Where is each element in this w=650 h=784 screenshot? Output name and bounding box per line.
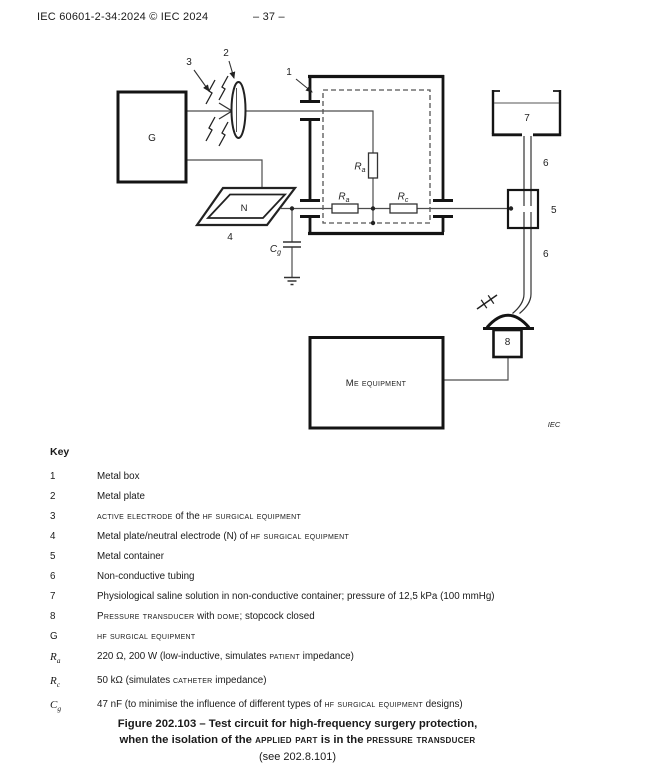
callout-5: 5: [551, 205, 557, 216]
caption-line-1: Figure 202.103 – Test circuit for high-f…: [0, 717, 595, 733]
caption-line-2: when the isolation of the applied part i…: [0, 733, 595, 749]
key-symbol: 5: [50, 547, 97, 567]
key-title: Key: [50, 446, 625, 459]
callout-3: 3: [186, 57, 192, 68]
junction-dot: [290, 206, 294, 210]
key-text: Non-conductive tubing: [97, 567, 625, 587]
key-text: Metal container: [97, 547, 625, 567]
key-text: Metal plate/neutral electrode (N) of hf …: [97, 527, 625, 547]
resistor-ra-horizontal-label: Ra: [338, 192, 349, 205]
spark-icon: [206, 80, 215, 104]
wire-transducer-to-me: [443, 357, 508, 380]
tubing-upper: [524, 136, 531, 206]
non-conductive-tubing: [513, 136, 532, 314]
key-row: 5Metal container: [50, 547, 625, 567]
key-row: Ra220 Ω, 200 W (low-inductive, simulates…: [50, 647, 625, 671]
callout-6-lower: 6: [543, 249, 549, 260]
key-list: 1Metal box2Metal plate3active electrode …: [50, 467, 625, 719]
junction-dot: [371, 221, 375, 225]
key-text: 47 nF (to minimise the influence of diff…: [97, 695, 625, 719]
me-equipment-label: Me equipment: [346, 378, 407, 389]
capacitor-cg-label: Cg: [270, 244, 281, 257]
callout-8: 8: [505, 337, 511, 348]
key-text: Metal plate: [97, 487, 625, 507]
key-symbol: 3: [50, 507, 97, 527]
transducer-dome: [487, 315, 529, 327]
key-text: Physiological saline solution in non-con…: [97, 587, 625, 607]
saline-container-walls: [493, 90, 560, 134]
spark-icon: [219, 122, 228, 146]
callout-7: 7: [524, 113, 530, 124]
callout-6-upper: 6: [543, 158, 549, 169]
key-symbol: 4: [50, 527, 97, 547]
key-row: 3active electrode of the hf surgical equ…: [50, 507, 625, 527]
ground-icon: [284, 278, 300, 285]
key-symbol: 6: [50, 567, 97, 587]
key-text: active electrode of the hf surgical equi…: [97, 507, 625, 527]
key-row: 7Physiological saline solution in non-co…: [50, 587, 625, 607]
resistor-ra-vertical-label: Ra: [354, 162, 365, 175]
spark-icon: [206, 117, 215, 141]
key-row: 6Non-conductive tubing: [50, 567, 625, 587]
key-row: 1Metal box: [50, 467, 625, 487]
callout-2: 2: [223, 48, 229, 59]
callout-1: 1: [286, 67, 292, 78]
key-row: 8Pressure transducer with dome; stopcock…: [50, 607, 625, 627]
stopcock-handle: [477, 295, 497, 309]
key-row: 2Metal plate: [50, 487, 625, 507]
key-symbol: 8: [50, 607, 97, 627]
resistor-ra-horizontal: [332, 204, 358, 213]
stopcock-icon: [477, 295, 497, 309]
key-text: Metal box: [97, 467, 625, 487]
neutral-electrode-label: N: [241, 203, 248, 214]
figure-caption: Figure 202.103 – Test circuit for high-f…: [0, 717, 595, 765]
caption-line-3: (see 202.8.101): [0, 750, 595, 766]
key-symbol: 1: [50, 467, 97, 487]
key-text: hf surgical equipment: [97, 627, 625, 647]
metal-plate: [232, 82, 246, 138]
tubing-bend: [513, 294, 532, 314]
spark-icon: [219, 76, 228, 100]
key-row: Cg47 nF (to minimise the influence of di…: [50, 695, 625, 719]
generator-label: G: [148, 133, 156, 144]
resistor-rc: [390, 204, 417, 213]
iec-credit: IEC: [548, 420, 561, 429]
callout-4: 4: [227, 232, 233, 243]
junction-dot: [371, 206, 375, 210]
circuit-diagram: G Ra Ra Rc N 4 Cg 3 2 1 7: [0, 0, 650, 445]
capacitor-cg: [283, 242, 301, 247]
junction-dot: [509, 206, 513, 210]
key-symbol: Cg: [50, 695, 97, 719]
tubing-lower: [524, 212, 531, 294]
key-symbol: Rc: [50, 671, 97, 695]
key-symbol: G: [50, 627, 97, 647]
callout-2-arrow: [229, 61, 234, 78]
callout-3-arrow: [194, 70, 209, 91]
key-symbol: 2: [50, 487, 97, 507]
key-symbol: 7: [50, 587, 97, 607]
key-section: Key 1Metal box2Metal plate3active electr…: [50, 446, 625, 719]
key-symbol: Ra: [50, 647, 97, 671]
key-text: 50 kΩ (simulates catheter impedance): [97, 671, 625, 695]
key-text: Pressure transducer with dome; stopcock …: [97, 607, 625, 627]
resistor-ra-vertical: [369, 153, 378, 178]
key-row: Ghf surgical equipment: [50, 627, 625, 647]
key-row: 4Metal plate/neutral electrode (N) of hf…: [50, 527, 625, 547]
key-text: 220 Ω, 200 W (low-inductive, simulates p…: [97, 647, 625, 671]
key-row: Rc50 kΩ (simulates catheter impedance): [50, 671, 625, 695]
resistor-rc-label: Rc: [398, 192, 409, 205]
